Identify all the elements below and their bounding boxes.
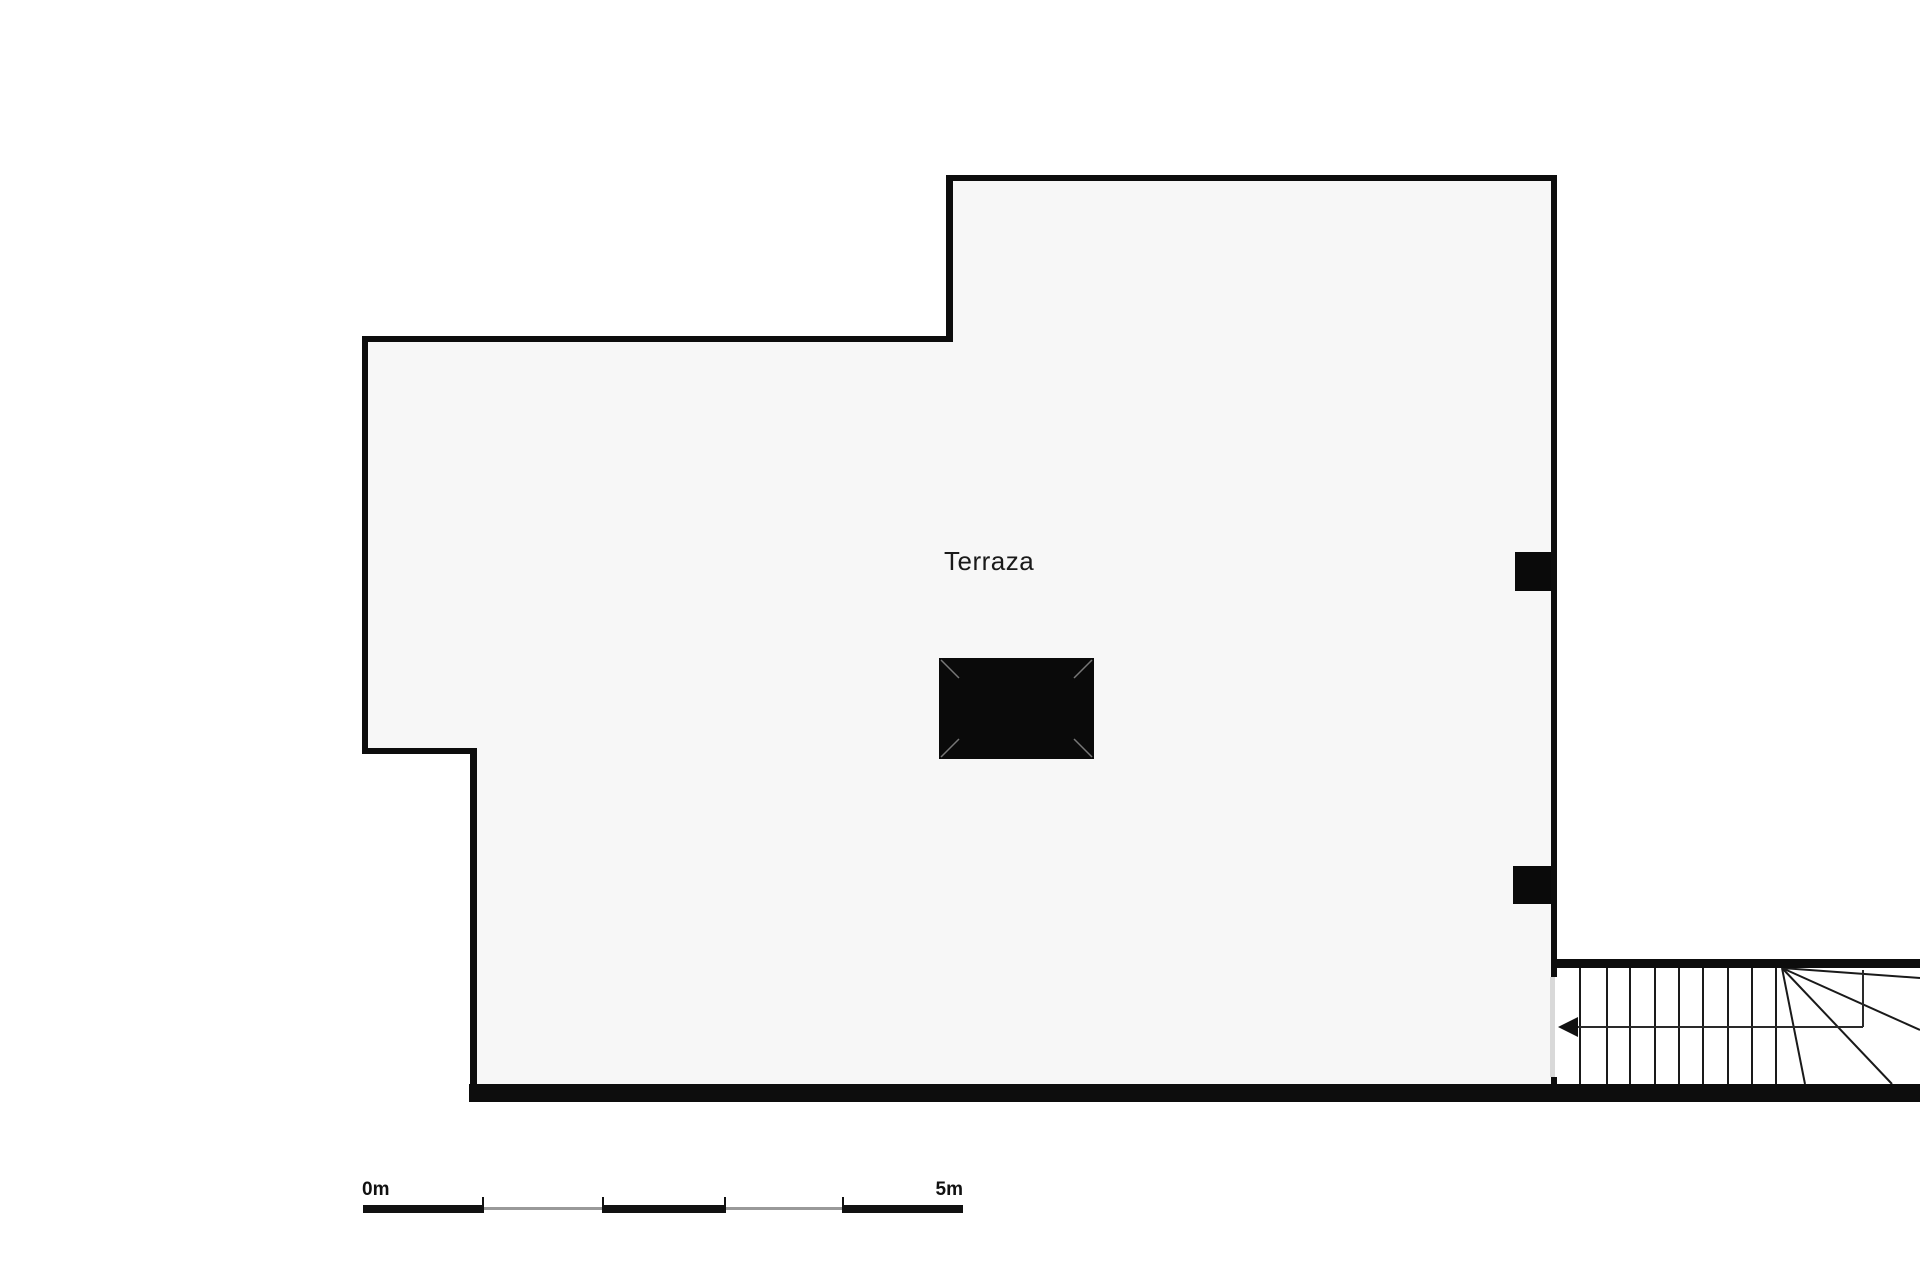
stair-opening-threshold	[1550, 977, 1555, 1077]
scale-bar-segment-black	[363, 1205, 483, 1213]
scale-bar-segment-black	[843, 1205, 963, 1213]
scale-bar-start-label: 0m	[362, 1179, 389, 1201]
wall-notch-vertical	[470, 748, 477, 1102]
floor-plan-svg	[0, 0, 1920, 1280]
wall-pillar-lower	[1513, 866, 1554, 904]
wall-stairs-top	[1551, 959, 1920, 968]
room-label-terraza: Terraza	[944, 546, 1034, 577]
scale-bar-segment-gray	[725, 1207, 843, 1210]
scale-bar-tick	[602, 1197, 604, 1213]
stair-walking-arrow	[1558, 1017, 1578, 1037]
scale-bar-end-label: 5m	[936, 1179, 963, 1201]
wall-top-right-edge	[946, 175, 1557, 181]
floor-plan-page: Terraza 0m 5m	[0, 0, 1920, 1280]
scale-bar-tick	[482, 1197, 484, 1213]
floor-plan-shapes	[362, 175, 1920, 1213]
scale-bar-tick	[842, 1197, 844, 1213]
table-rect	[939, 658, 1094, 759]
wall-notch-horizontal	[362, 748, 477, 754]
wall-pillar-upper	[1515, 552, 1554, 591]
wall-right	[1551, 175, 1557, 977]
terrace-floor	[365, 178, 1554, 1090]
scale-bar-segment-gray	[483, 1207, 603, 1210]
scale-bar-tick	[724, 1197, 726, 1213]
wall-top-left-edge	[362, 336, 953, 342]
wall-step-vertical	[946, 175, 953, 342]
scale-bar-segment-black	[603, 1205, 725, 1213]
wall-left	[362, 336, 368, 754]
wall-bottom	[469, 1084, 1920, 1102]
